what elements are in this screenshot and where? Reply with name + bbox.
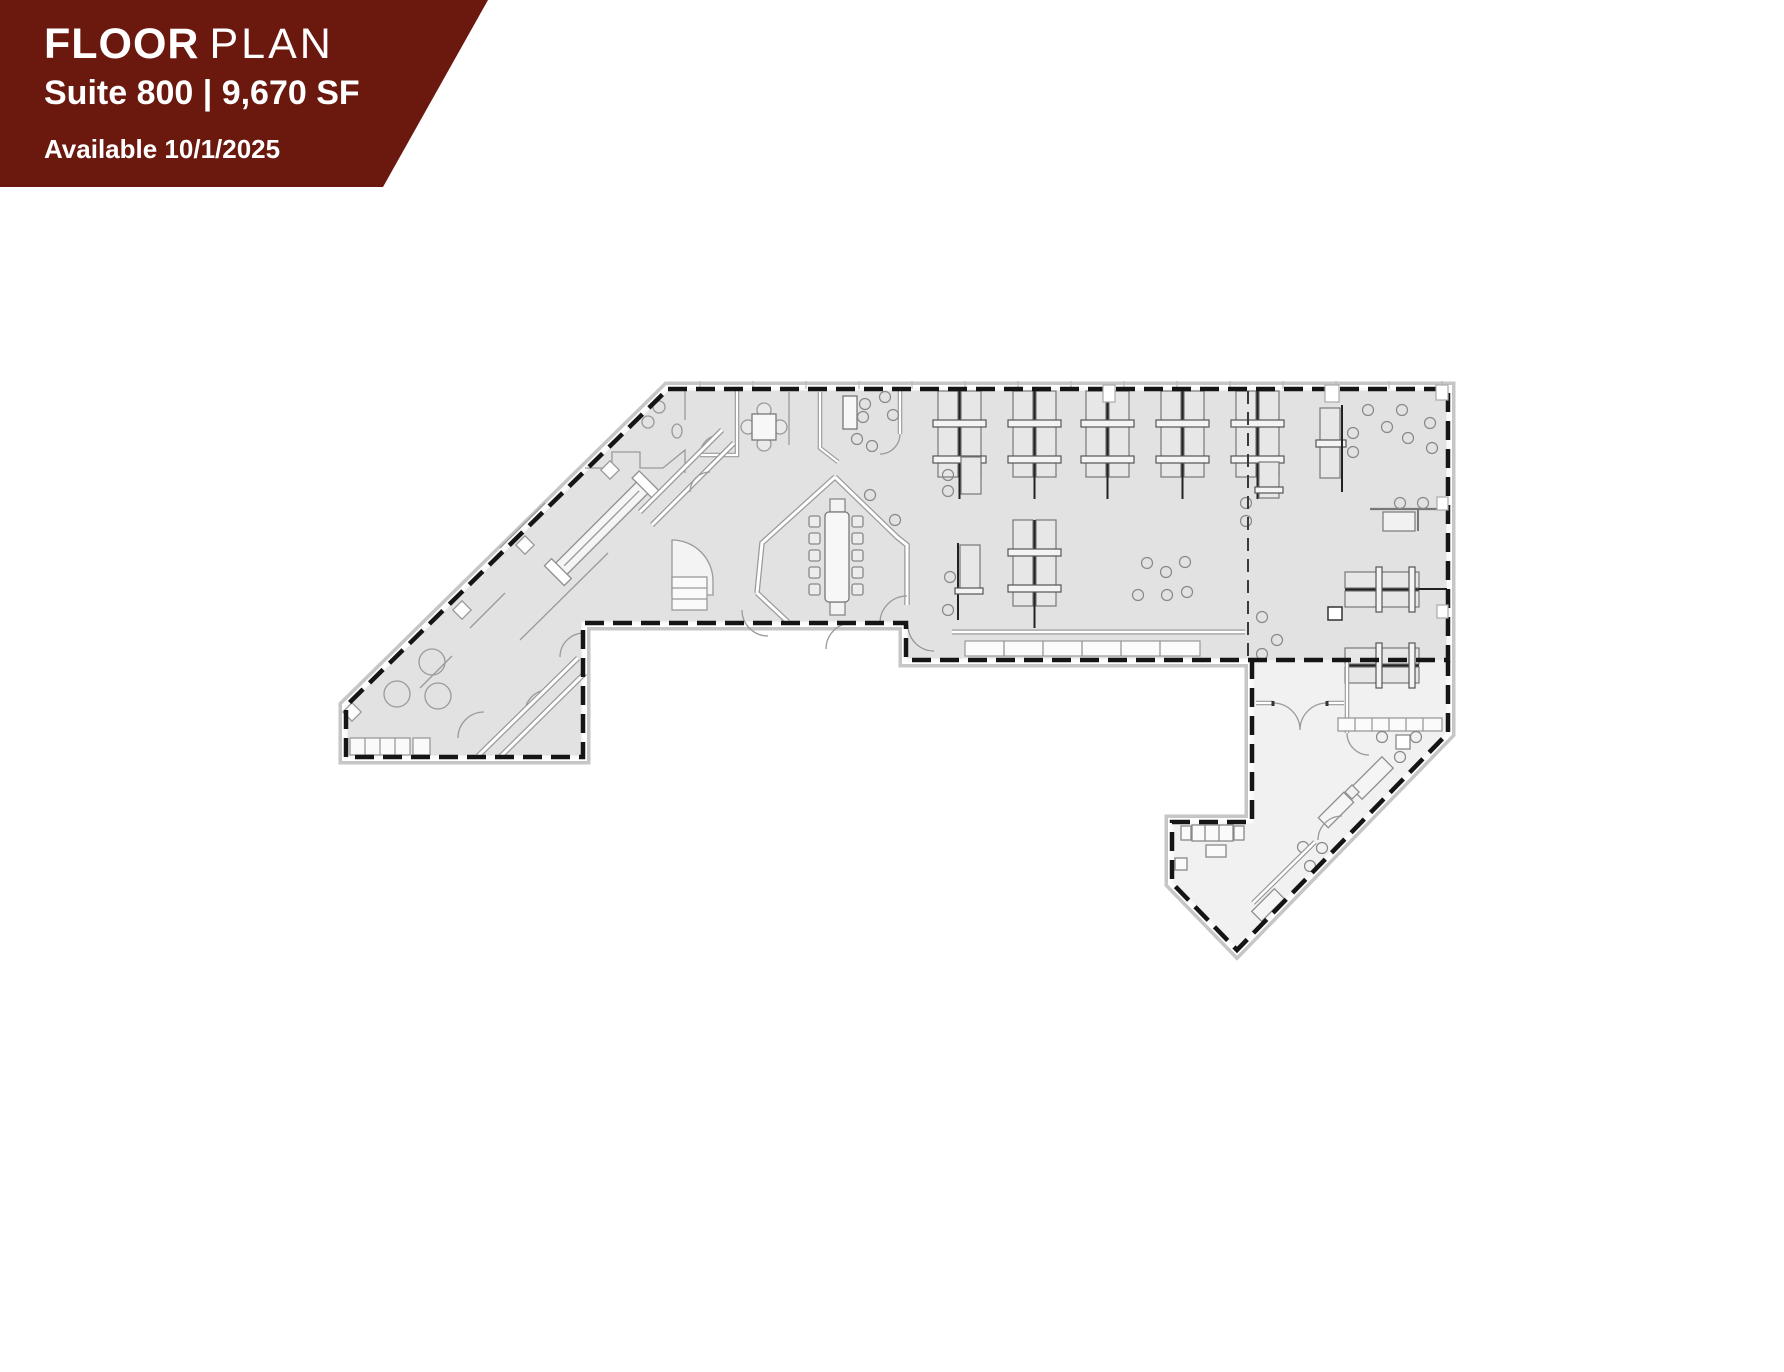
floor-plan-drawing bbox=[0, 0, 1784, 1372]
page: FLOORPLAN Suite 800 | 9,670 SF Available… bbox=[0, 0, 1784, 1372]
annex-area bbox=[1172, 660, 1448, 950]
annex-counter bbox=[1338, 718, 1442, 731]
base-cabinets bbox=[350, 738, 430, 755]
bottom-counter bbox=[965, 641, 1200, 656]
